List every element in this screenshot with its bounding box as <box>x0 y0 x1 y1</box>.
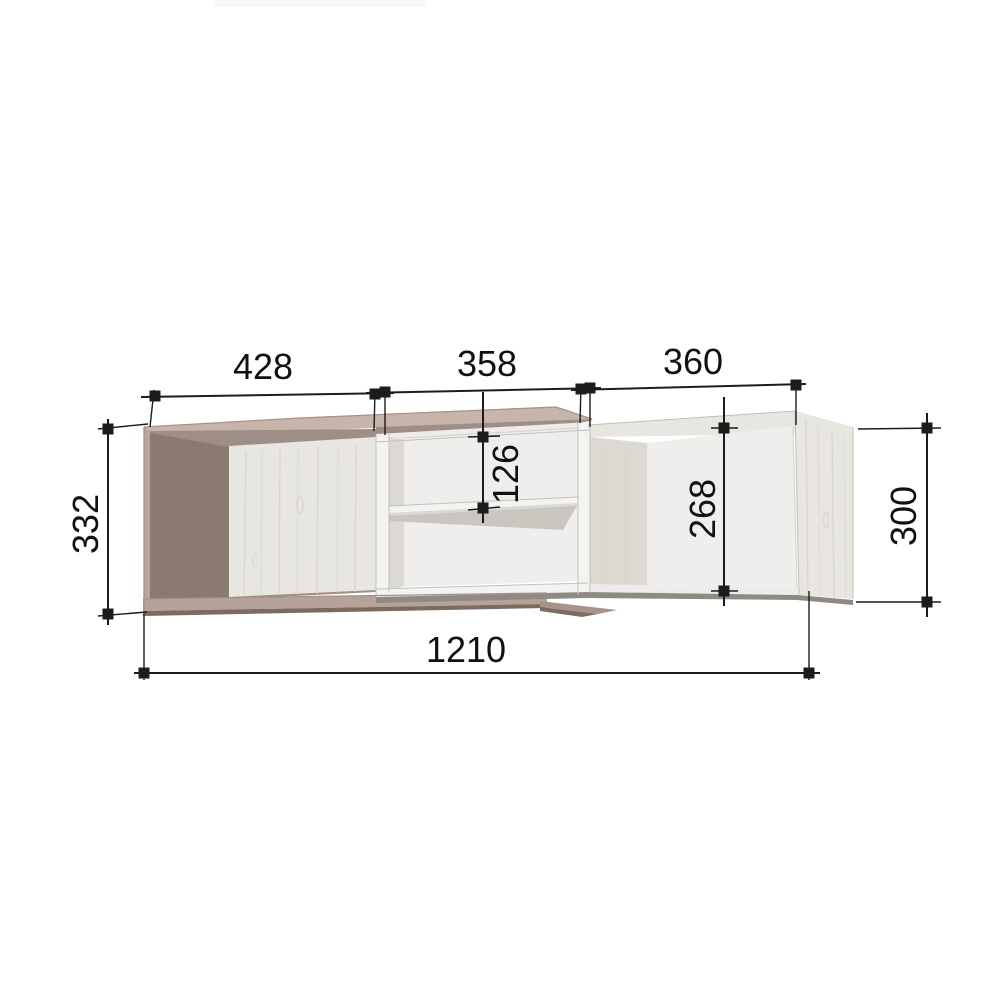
dim-label-360: 360 <box>663 341 723 382</box>
shelf-dimension-drawing: 428 358 360 332 <box>0 0 1000 1000</box>
shelf-unit <box>143 407 853 617</box>
dim-right-outer-300: 300 <box>856 413 941 617</box>
dim-endpoint <box>791 380 802 391</box>
middle-section-right-stile <box>578 421 590 595</box>
dim-endpoint <box>922 423 933 434</box>
middle-section-left-stile <box>376 434 389 595</box>
dim-endpoint <box>370 389 381 400</box>
dim-endpoint <box>922 597 933 608</box>
dim-endpoint <box>719 586 730 597</box>
drawing-page: 428 358 360 332 <box>0 0 1000 1000</box>
left-cabinet-back-panel <box>229 437 376 597</box>
dim-endpoint <box>139 668 150 679</box>
dim-line <box>141 393 394 397</box>
dim-left-height-332: 332 <box>65 419 148 625</box>
left-cabinet-side-edge <box>144 427 150 610</box>
dim-label-358: 358 <box>457 343 517 384</box>
dim-label-332: 332 <box>65 494 106 554</box>
dim-endpoint <box>719 423 730 434</box>
dim-label-428: 428 <box>233 346 293 387</box>
dim-endpoint <box>478 432 489 443</box>
dim-label-268: 268 <box>682 479 723 539</box>
dim-line <box>571 384 806 390</box>
left-cabinet-inner-left-wall <box>150 433 229 603</box>
right-cabinet-inner-left-wall <box>590 437 647 591</box>
dim-endpoint <box>103 609 114 620</box>
dim-label-300: 300 <box>883 486 924 546</box>
dim-endpoint <box>804 668 815 679</box>
dim-endpoint <box>585 383 596 394</box>
artifact-strip <box>215 0 425 7</box>
dim-label-126: 126 <box>485 444 526 504</box>
dim-endpoint <box>103 424 114 435</box>
dim-endpoint <box>380 387 391 398</box>
dim-label-1210: 1210 <box>426 629 506 670</box>
dim-endpoint <box>150 391 161 402</box>
